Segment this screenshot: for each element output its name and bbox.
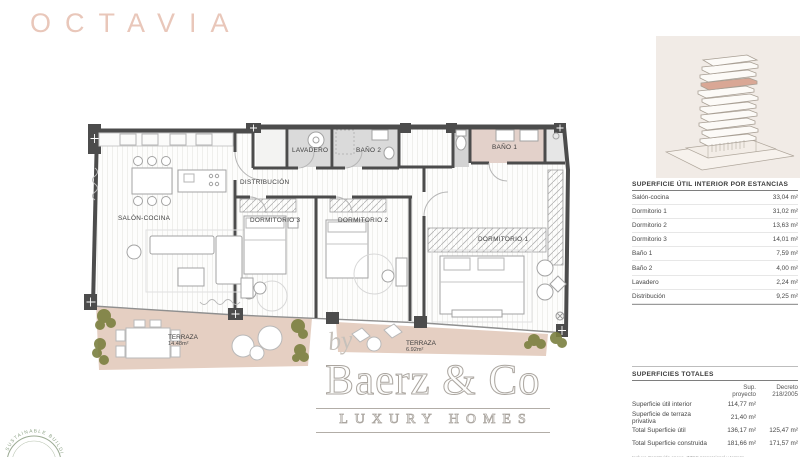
table-row: Lavadero 2,24 m² <box>632 276 798 290</box>
room-label-salon: SALÓN-COCINA <box>118 215 170 222</box>
building-illustration <box>656 36 800 178</box>
logo-rule-bottom <box>316 432 550 433</box>
room-label-bano2: BAÑO 2 <box>356 147 381 154</box>
row-label: Distribución <box>632 293 665 300</box>
logo-tagline: LUXURY HOMES <box>308 412 558 428</box>
logo-rule-top <box>316 408 550 409</box>
table-row: Baño 1 7,59 m² <box>632 247 798 261</box>
row-value: 33,04 m² <box>773 194 798 201</box>
col-decreto: Decreto 218/2005 <box>756 384 798 398</box>
totals-title-rule <box>632 380 798 381</box>
logo-by-script: by <box>326 325 354 357</box>
table-row: Dormitorio 3 14,01 m² <box>632 233 798 247</box>
totals-table: SUPERFICIES TOTALES Sup. proyecto Decret… <box>632 366 798 457</box>
row-value: 4,00 m² <box>776 265 798 272</box>
room-label-dorm3: DORMITORIO 3 <box>250 217 300 224</box>
totals-row: Total Superficie construida 181,66 m² 17… <box>632 437 798 450</box>
terrace1-label: TERRAZA 14.48m² <box>168 334 198 348</box>
row-label: Baño 1 <box>632 250 652 257</box>
sustainable-badge: SUSTAINABLE BUILDING <box>0 425 72 457</box>
row-v1: 136,17 m² <box>714 427 756 434</box>
totals-row: Superficie de terraza privativa 21,40 m² <box>632 411 798 424</box>
row-v1: 114,77 m² <box>714 401 756 408</box>
svg-text:SUSTAINABLE BUILDING: SUSTAINABLE BUILDING <box>0 425 65 455</box>
totals-row: Total Superficie útil 136,17 m² 125,47 m… <box>632 424 798 437</box>
totals-row: Superficie útil interior 114,77 m² <box>632 398 798 411</box>
row-value: 14,01 m² <box>773 236 798 243</box>
row-value: 9,25 m² <box>776 293 798 300</box>
table-row: Salón-cocina 33,04 m² <box>632 191 798 205</box>
room-label-bano1: BAÑO 1 <box>492 144 517 151</box>
brand-logo: Baerz & Co LUXURY HOMES <box>308 358 558 436</box>
row-value: 2,24 m² <box>776 279 798 286</box>
totals-table-title: SUPERFICIES TOTALES <box>632 371 798 378</box>
row-label: Dormitorio 2 <box>632 222 667 229</box>
row-label: Salón-cocina <box>632 194 669 201</box>
room-label-distribucion: DISTRIBUCIÓN <box>240 179 289 186</box>
row-label: Superficie útil interior <box>632 401 714 408</box>
badge-text: SUSTAINABLE BUILDING <box>0 425 65 455</box>
room-areas-table-title: SUPERFICIE ÚTIL INTERIOR POR ESTANCIAS <box>632 181 798 188</box>
row-label: Superficie de terraza privativa <box>632 411 714 425</box>
terrace2-area: 6.92m² <box>406 347 436 354</box>
table-row: Distribución 9,25 m² <box>632 290 798 304</box>
room-label-lavadero: LAVADERO <box>292 147 328 154</box>
row-label: Total Superficie construida <box>632 440 714 447</box>
table-row: Dormitorio 2 13,63 m² <box>632 219 798 233</box>
room-areas-table: SUPERFICIE ÚTIL INTERIOR POR ESTANCIAS S… <box>632 181 798 305</box>
building-panel <box>656 36 800 178</box>
row-label: Dormitorio 3 <box>632 236 667 243</box>
row-value: 7,59 m² <box>776 250 798 257</box>
totals-column-headers: Sup. proyecto Decreto 218/2005 <box>632 384 798 398</box>
row-value: 31,02 m² <box>773 208 798 215</box>
row-label: Dormitorio 1 <box>632 208 667 215</box>
terrace2-name: TERRAZA <box>406 340 436 347</box>
row-v1: 181,66 m² <box>714 440 756 447</box>
table-row: Dormitorio 1 31,02 m² <box>632 205 798 219</box>
room-label-dorm1: DORMITORIO 1 <box>478 236 528 243</box>
floorplan-page: OCTAVIA <box>0 0 800 457</box>
totals-rule-top <box>632 366 798 367</box>
table-row: Baño 2 4,00 m² <box>632 261 798 275</box>
table-rule-bottom <box>632 304 798 305</box>
row-label: Baño 2 <box>632 265 652 272</box>
row-v1: 21,40 m² <box>714 414 756 421</box>
row-v2: 125,47 m² <box>756 427 798 434</box>
col-sup-proyecto: Sup. proyecto <box>714 384 756 398</box>
row-v2: 171,57 m² <box>756 440 798 447</box>
row-label: Lavadero <box>632 279 659 286</box>
terrace2-label: TERRAZA 6.92m² <box>406 340 436 354</box>
logo-wordmark: Baerz & Co <box>308 358 558 404</box>
row-label: Total Superficie útil <box>632 427 714 434</box>
page-title: OCTAVIA <box>30 8 243 39</box>
room-label-dorm2: DORMITORIO 2 <box>338 217 388 224</box>
terrace1-name: TERRAZA <box>168 334 198 341</box>
terrace1-area: 14.48m² <box>168 341 198 348</box>
row-value: 13,63 m² <box>773 222 798 229</box>
